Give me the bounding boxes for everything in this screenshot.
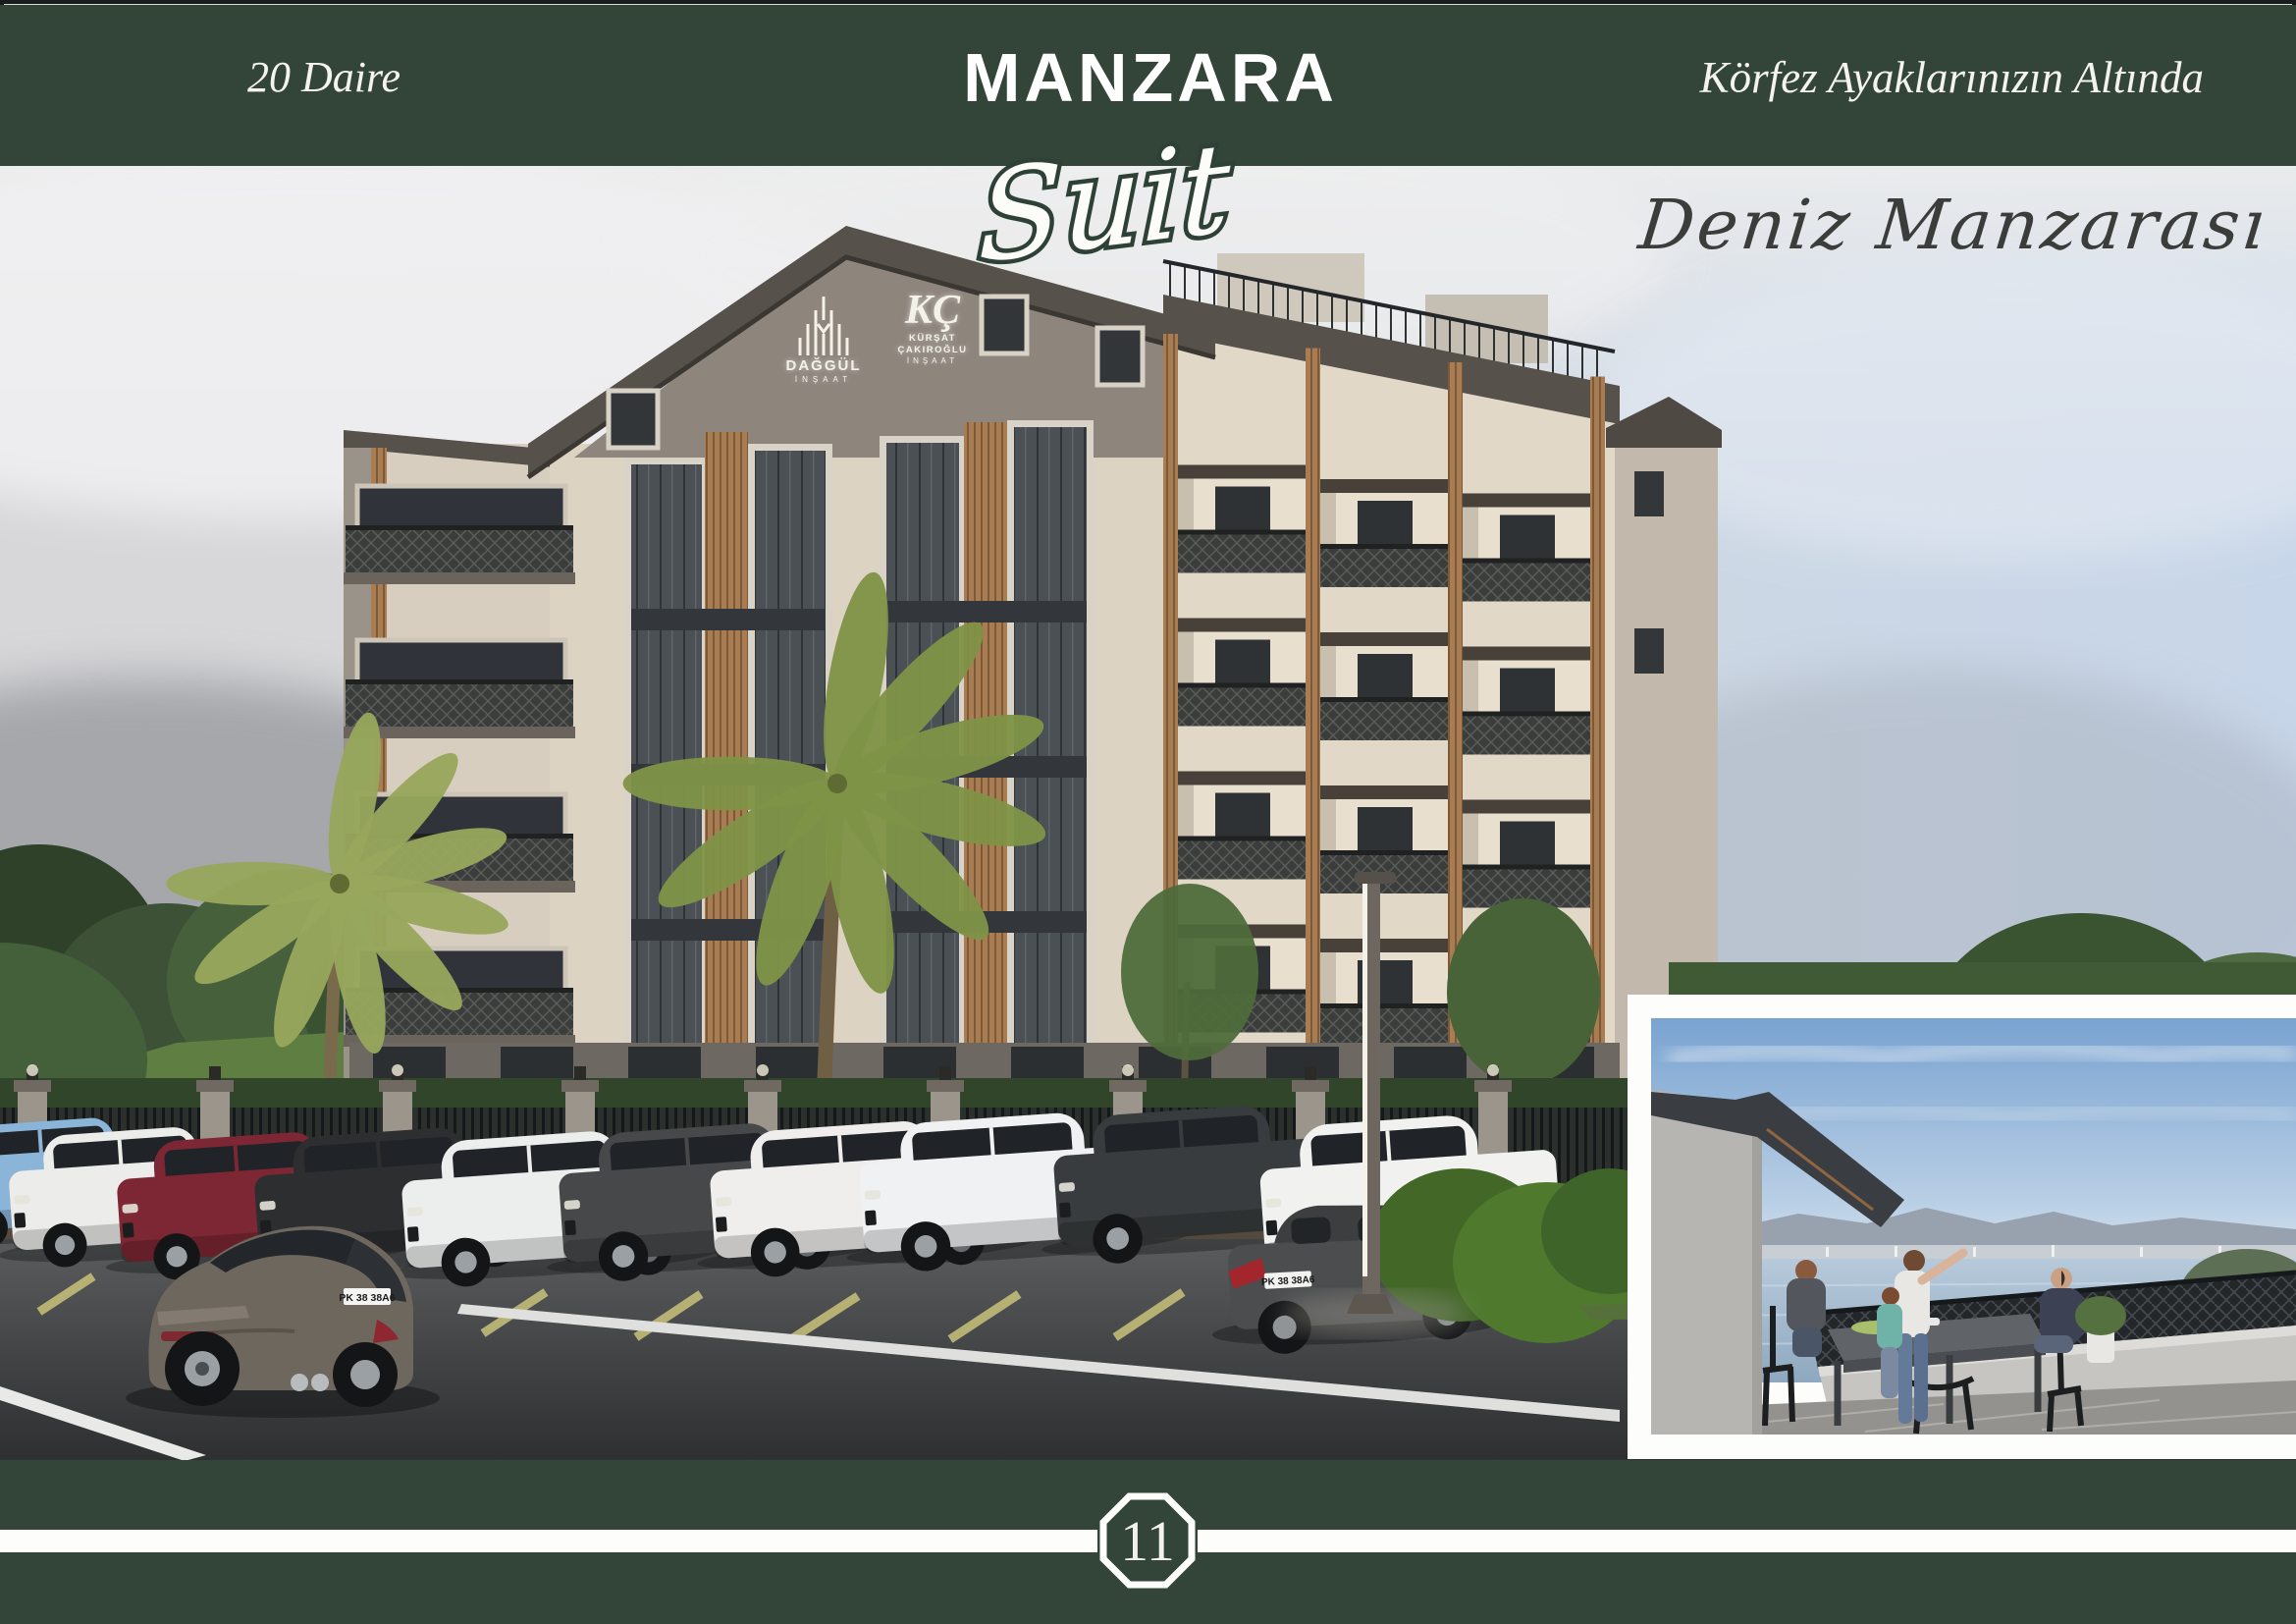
script-subtitle: Suit xyxy=(937,94,1310,310)
brochure-page: PK 38 38A6 xyxy=(0,0,2296,1624)
unit-count-tagline: 20 Daire xyxy=(196,53,452,103)
header-right-tagline: Körfez Ayaklarınızın Altında xyxy=(1688,53,2204,104)
daggul-logo: DAĞGÜL İNŞAAT xyxy=(779,295,868,385)
page-number-badge: 11 xyxy=(0,1460,2296,1624)
daggul-logo-icon xyxy=(779,295,868,355)
sea-view-caption: Deniz Manzarası xyxy=(1606,190,2296,259)
terrace-photo xyxy=(1628,995,2296,1459)
page-number: 11 xyxy=(1120,1509,1175,1573)
svg-text:Suit: Suit xyxy=(977,114,1232,291)
svg-text:PK 38 38A6: PK 38 38A6 xyxy=(339,1292,395,1304)
